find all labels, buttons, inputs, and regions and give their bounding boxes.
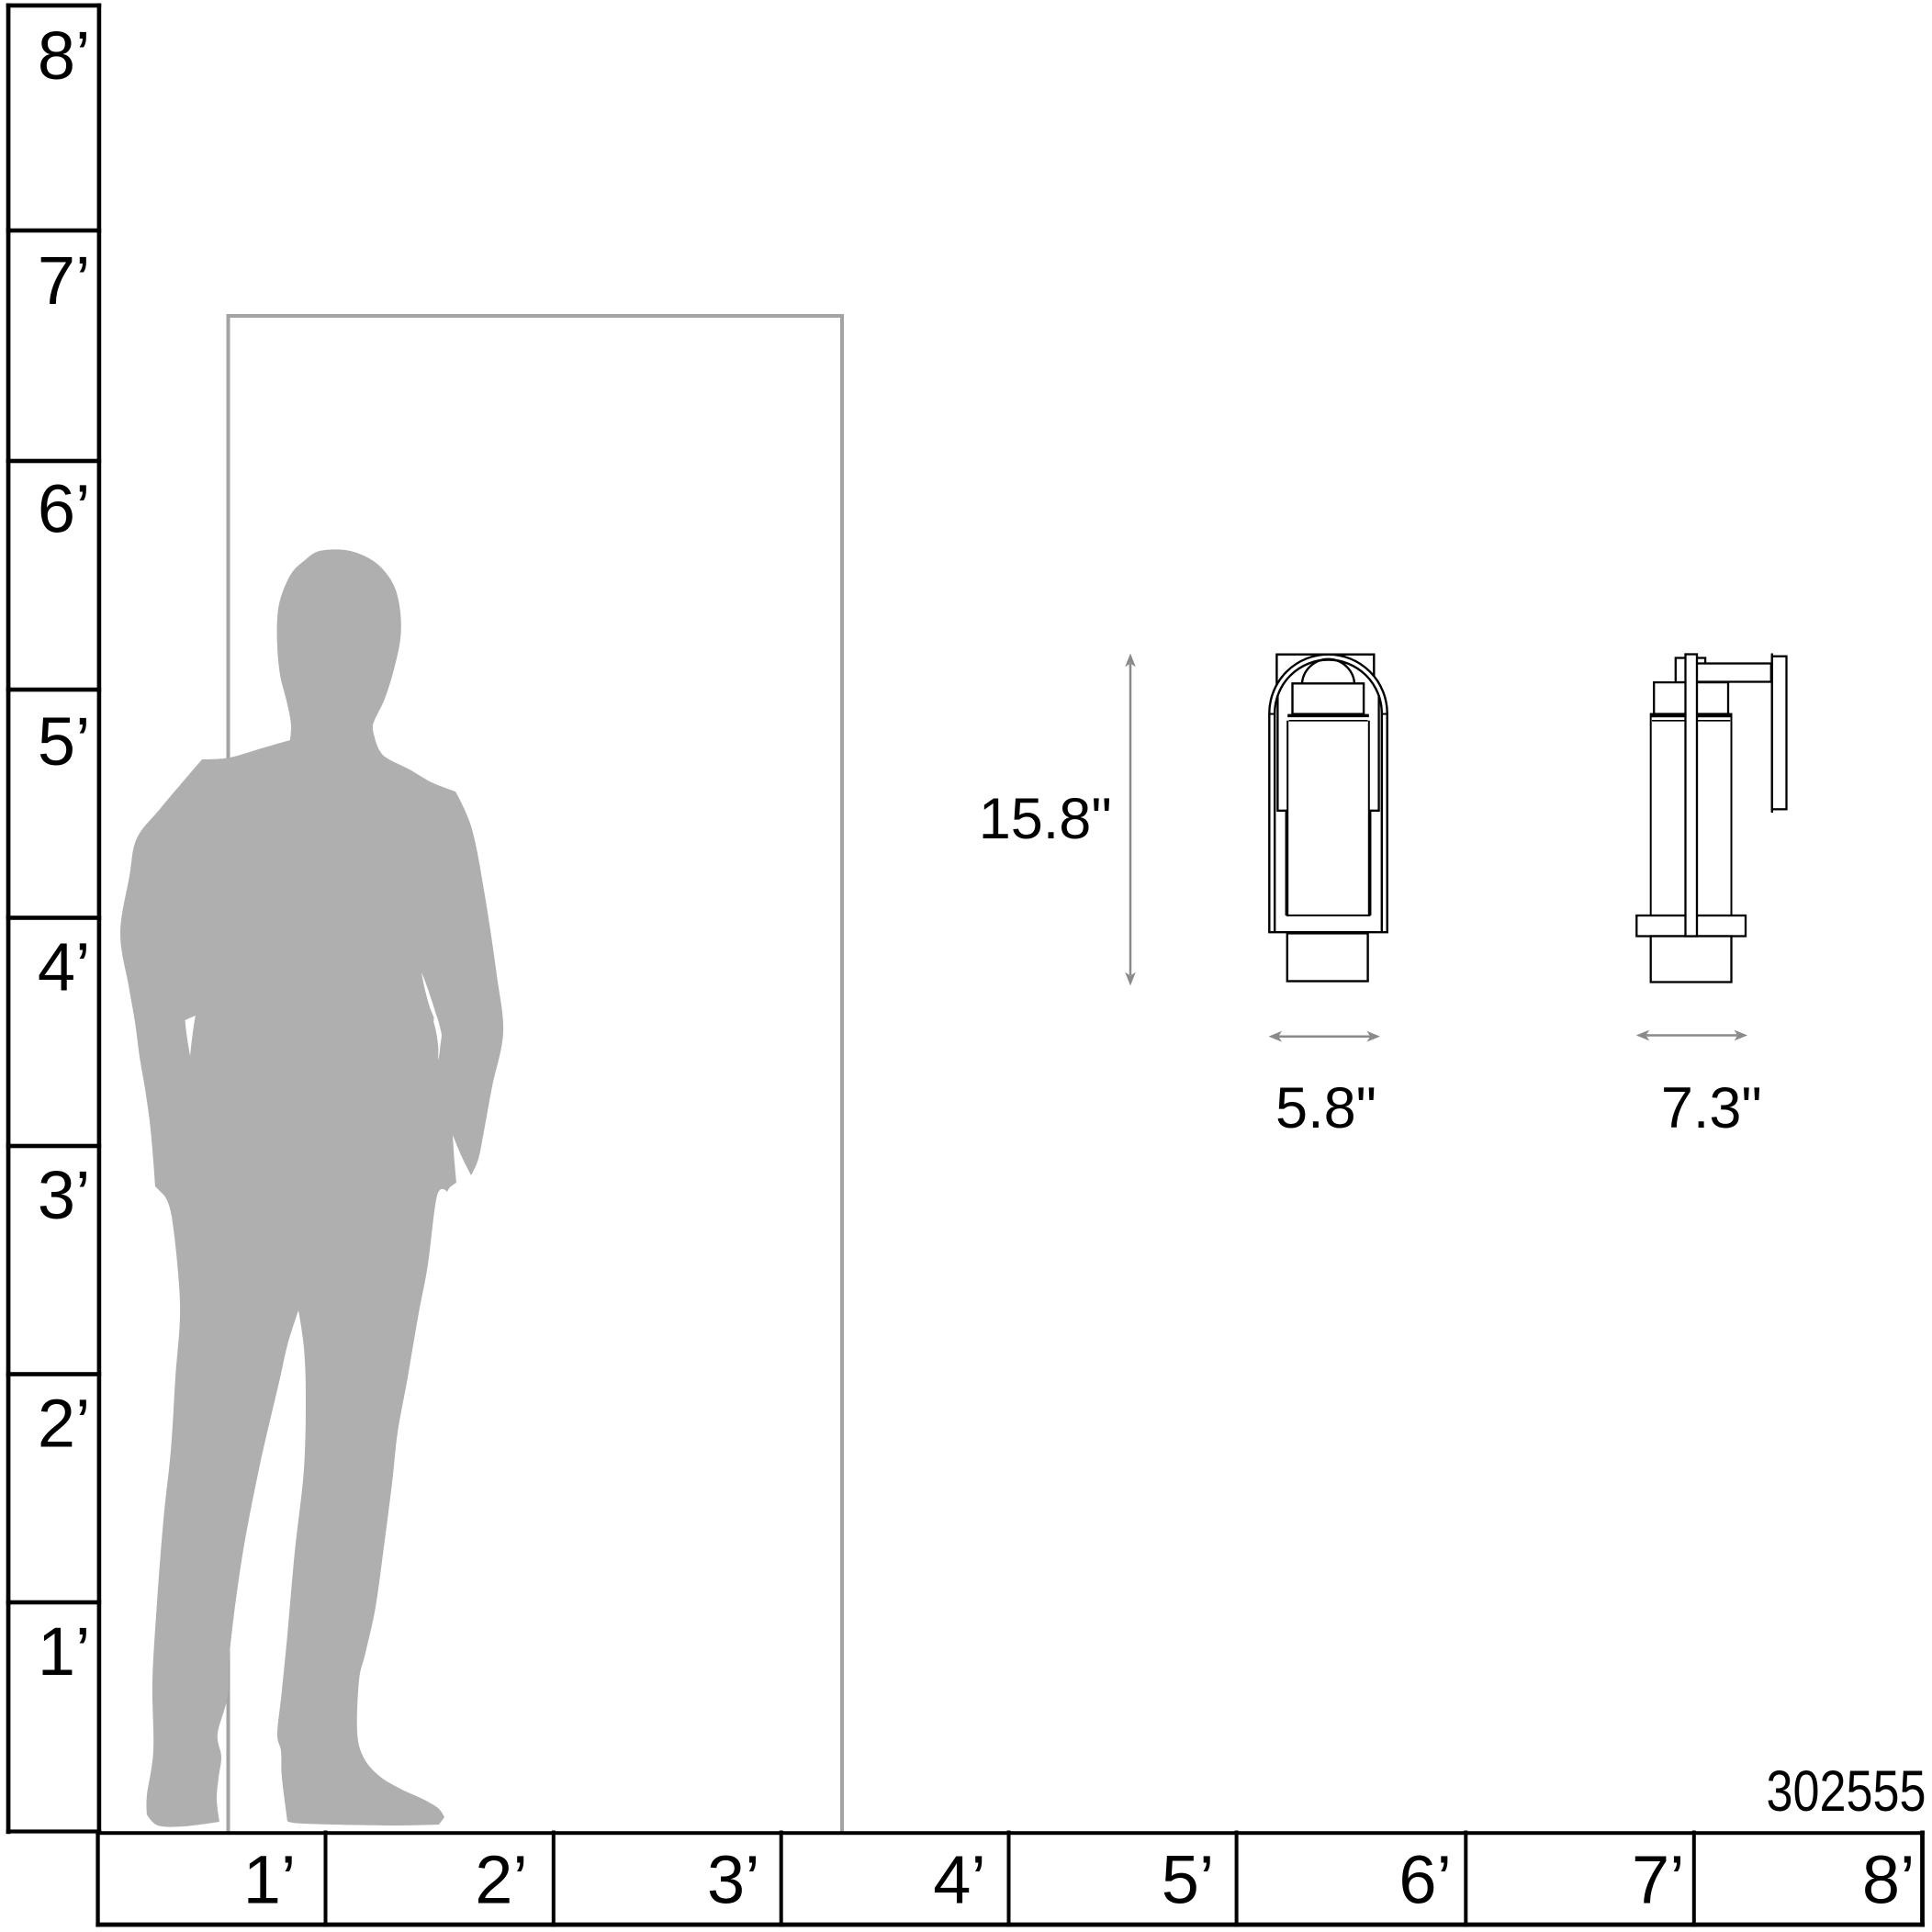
svg-text:302555: 302555 [1767, 1759, 1926, 1824]
svg-text:1’: 1’ [38, 1613, 91, 1690]
svg-text:2’: 2’ [38, 1386, 91, 1462]
svg-text:4’: 4’ [933, 1842, 986, 1918]
svg-text:3’: 3’ [38, 1157, 91, 1233]
svg-text:5.8": 5.8" [1275, 1076, 1376, 1140]
svg-text:7’: 7’ [1632, 1842, 1685, 1918]
svg-text:5’: 5’ [38, 703, 91, 780]
svg-text:15.8": 15.8" [979, 787, 1112, 851]
svg-text:7.3": 7.3" [1661, 1076, 1762, 1140]
svg-text:1’: 1’ [243, 1842, 297, 1918]
svg-text:4’: 4’ [38, 929, 91, 1005]
svg-text:2’: 2’ [475, 1842, 528, 1918]
svg-text:5’: 5’ [1162, 1842, 1215, 1918]
svg-text:3’: 3’ [707, 1842, 760, 1918]
svg-text:8’: 8’ [38, 17, 91, 94]
svg-text:6’: 6’ [1398, 1842, 1452, 1918]
svg-text:8’: 8’ [1862, 1842, 1915, 1918]
svg-text:7’: 7’ [38, 242, 91, 319]
svg-text:6’: 6’ [38, 471, 91, 547]
